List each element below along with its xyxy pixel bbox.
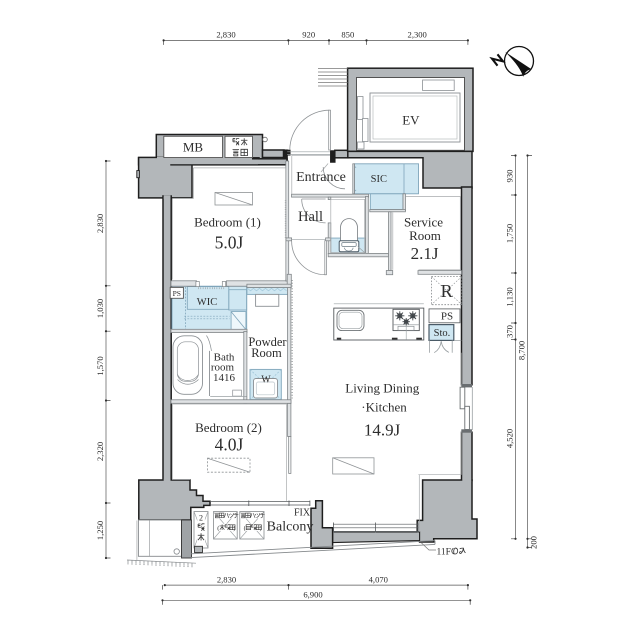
svg-text:2,830: 2,830 — [216, 30, 235, 40]
svg-text:2.1J: 2.1J — [411, 244, 439, 263]
svg-text:): ) — [233, 525, 235, 532]
svg-text:SIC: SIC — [371, 174, 387, 185]
svg-text:Entrance: Entrance — [296, 170, 346, 185]
svg-text:FIX: FIX — [294, 507, 311, 518]
svg-text:1,570: 1,570 — [95, 356, 105, 375]
svg-text:EV: EV — [402, 112, 420, 127]
svg-text:MB: MB — [183, 139, 204, 154]
svg-text:PS: PS — [173, 289, 181, 298]
svg-text:Service: Service — [404, 214, 443, 229]
svg-text:Living Dining: Living Dining — [345, 381, 420, 396]
svg-text:2,320: 2,320 — [95, 442, 105, 461]
svg-text:R: R — [441, 281, 453, 301]
svg-text:Hall: Hall — [298, 209, 323, 225]
svg-text:WIC: WIC — [197, 297, 217, 308]
svg-text:1,250: 1,250 — [95, 521, 105, 540]
svg-text:850: 850 — [341, 30, 354, 40]
svg-text:1,750: 1,750 — [505, 224, 515, 243]
svg-text:8,700: 8,700 — [517, 341, 527, 360]
svg-text:Bedroom (2): Bedroom (2) — [195, 420, 262, 435]
svg-text:370: 370 — [505, 325, 515, 338]
svg-text:1,130: 1,130 — [505, 287, 515, 306]
svg-text:(: ( — [217, 525, 219, 532]
svg-text:1,030: 1,030 — [95, 299, 105, 318]
svg-text:1416: 1416 — [213, 372, 236, 384]
svg-text:(: ( — [244, 525, 246, 532]
svg-text:4,520: 4,520 — [505, 429, 515, 448]
svg-text:PS: PS — [441, 311, 453, 323]
svg-text:W: W — [261, 375, 271, 386]
svg-text:2,830: 2,830 — [95, 214, 105, 233]
svg-text:6,900: 6,900 — [303, 590, 322, 600]
svg-text:Sto.: Sto. — [434, 328, 451, 339]
svg-text:2: 2 — [199, 514, 203, 523]
svg-text:14.9J: 14.9J — [364, 421, 401, 440]
svg-text:920: 920 — [302, 30, 315, 40]
svg-text:Room: Room — [409, 228, 441, 243]
svg-text:2,830: 2,830 — [217, 574, 236, 584]
svg-text:Room: Room — [251, 346, 282, 360]
svg-text:4,070: 4,070 — [369, 574, 388, 584]
svg-text:4.0J: 4.0J — [215, 435, 244, 455]
svg-text:11F: 11F — [437, 548, 451, 558]
svg-text:): ) — [260, 525, 262, 532]
svg-text:5.0J: 5.0J — [215, 232, 244, 252]
svg-text:Balcony: Balcony — [267, 520, 314, 535]
svg-text:Bedroom (1): Bedroom (1) — [194, 214, 261, 229]
svg-text:930: 930 — [505, 170, 515, 183]
svg-text:·Kitchen: ·Kitchen — [361, 399, 407, 414]
svg-text:200: 200 — [529, 536, 539, 549]
svg-text:2,300: 2,300 — [408, 30, 427, 40]
